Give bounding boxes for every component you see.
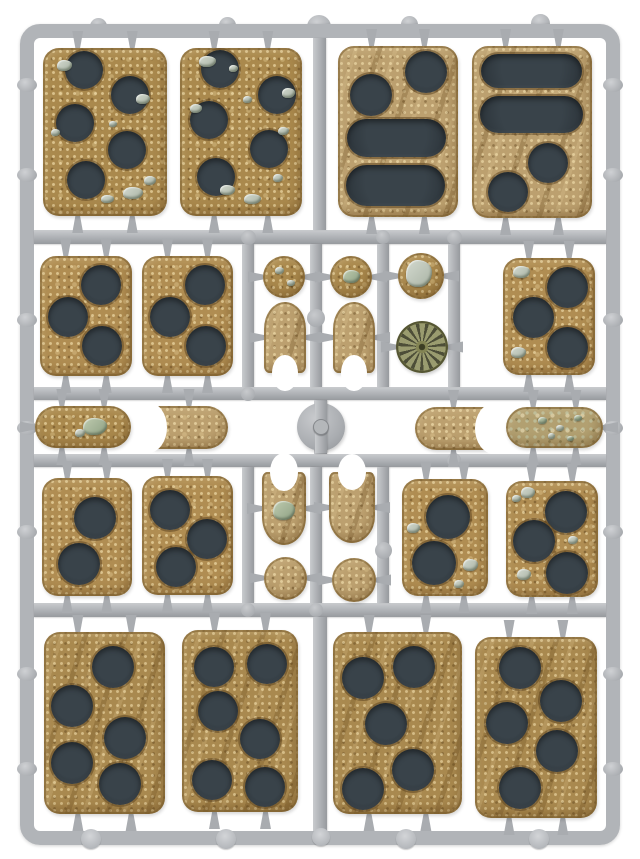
rock: [406, 260, 432, 287]
rock: [275, 267, 284, 274]
round-base: [264, 557, 307, 600]
rock: [57, 60, 72, 71]
base-hole-circle: [198, 691, 238, 731]
sprue-rail-vertical: [242, 244, 254, 387]
rock: [101, 195, 114, 203]
sprue-rail-vertical: [377, 244, 389, 387]
sprue-junction-disc: [376, 230, 390, 244]
tombstone-notch-cut: [272, 355, 298, 392]
base-hole-circle: [499, 647, 541, 689]
sprue-photo: [0, 0, 640, 859]
rock: [407, 523, 420, 533]
base-hole-pill: [481, 54, 582, 88]
base-hole-circle: [342, 768, 384, 810]
rock: [513, 266, 530, 278]
sprue-side-nub: [603, 168, 623, 182]
sprue-junction-disc: [241, 387, 255, 401]
base-hole-circle: [547, 267, 588, 308]
base-hole-circle: [486, 702, 528, 744]
sprue-side-nub: [603, 313, 623, 327]
base-hole-circle: [150, 490, 190, 530]
sprue-junction-disc: [447, 230, 462, 245]
base-hole-circle: [393, 646, 435, 688]
rock: [282, 88, 295, 98]
base-hole-circle: [51, 685, 93, 727]
rock: [273, 501, 295, 520]
rock: [463, 559, 478, 571]
rock: [517, 569, 531, 580]
sprue-side-nub: [17, 78, 37, 92]
sprue-gate-remnant-disc: [216, 829, 236, 849]
pill-base: [506, 407, 603, 448]
base-hole-circle: [547, 327, 588, 368]
rock: [190, 104, 202, 113]
rock: [278, 127, 289, 135]
rock: [199, 56, 216, 67]
base-hole-circle: [51, 742, 93, 784]
wheel-hub-dot: [419, 344, 425, 350]
rock: [229, 65, 238, 72]
base-hole-circle: [528, 143, 568, 183]
base-hole-circle: [74, 497, 116, 539]
rock: [343, 270, 360, 283]
base-hole-circle: [342, 657, 384, 699]
base-hole-circle: [185, 265, 225, 305]
sprue-side-nub: [17, 313, 37, 327]
base-hole-circle: [540, 680, 582, 722]
base-hole-circle: [365, 703, 407, 745]
tombstone-notch-cut: [341, 355, 367, 392]
base-hole-circle: [82, 326, 122, 366]
sprue-junction-disc: [241, 603, 255, 617]
rock: [512, 495, 521, 502]
sprue-junction-disc: [309, 603, 323, 617]
sprue-junction-disc: [307, 309, 325, 327]
base-hole-circle: [250, 130, 288, 168]
sprue-gate-remnant-disc: [396, 829, 416, 849]
sprue-side-nub: [603, 667, 623, 681]
rock: [144, 176, 156, 185]
rock: [567, 436, 574, 441]
base-hole-circle: [350, 74, 392, 116]
base-hole-circle: [187, 519, 227, 559]
tombstone-notch-cut: [270, 453, 297, 491]
base-hole-circle: [392, 749, 434, 791]
base-hole-circle: [104, 717, 146, 759]
rock: [244, 194, 261, 204]
sprue-side-nub: [17, 762, 37, 776]
base-hole-circle: [194, 647, 234, 687]
base-hole-pill: [347, 119, 446, 157]
base-hole-circle: [546, 552, 588, 594]
base-hole-circle: [247, 644, 287, 684]
sprue-side-nub: [17, 525, 37, 539]
sprue-junction-disc: [375, 542, 392, 559]
sprue-side-nub: [17, 667, 37, 681]
rock: [511, 347, 526, 358]
rock: [51, 129, 60, 136]
base-hole-circle: [513, 520, 555, 562]
base-hole-circle: [240, 719, 280, 759]
base-hole-pill: [346, 165, 445, 206]
base-hole-circle: [99, 763, 141, 805]
base-hole-circle: [513, 297, 554, 338]
base-hole-circle: [192, 760, 232, 800]
sprue-rail-vertical: [313, 38, 326, 230]
base-hole-circle: [65, 51, 103, 89]
base-hole-circle: [156, 547, 196, 587]
base-hole-circle: [405, 51, 447, 93]
base-hole-circle: [499, 767, 541, 809]
base-hole-circle: [488, 172, 528, 212]
base-hole-circle: [58, 543, 100, 585]
sprue-gate-remnant-disc: [312, 828, 330, 846]
sprue-rail-horizontal: [34, 454, 606, 467]
sprue-junction-disc: [241, 230, 256, 245]
sprue-rail-horizontal: [34, 387, 606, 400]
round-base: [263, 256, 305, 298]
base-hole-circle: [67, 161, 105, 199]
base-hole-circle: [56, 104, 94, 142]
base-hole-circle: [186, 326, 226, 366]
base-hole-circle: [48, 297, 88, 337]
rock: [220, 185, 235, 195]
sprue-rail-vertical: [313, 617, 327, 831]
sprue-side-nub: [603, 78, 623, 92]
rock: [521, 487, 535, 498]
rock: [548, 433, 555, 439]
sprue-side-nub: [17, 168, 37, 182]
base-hole-pill: [480, 96, 583, 133]
rock: [538, 417, 547, 424]
round-base: [332, 558, 376, 602]
base-hole-circle: [536, 730, 578, 772]
base-hole-circle: [81, 265, 121, 305]
sprue-side-nub: [603, 762, 623, 776]
base-hole-circle: [412, 541, 456, 585]
half-pill-crescent-cut: [129, 402, 167, 453]
rock: [83, 418, 107, 435]
base-hole-circle: [545, 491, 587, 533]
sprue-gate-remnant-disc: [529, 829, 549, 849]
base-hole-circle: [150, 297, 190, 337]
base-hole-circle: [92, 646, 134, 688]
sprue-rail-vertical: [448, 244, 460, 387]
rock: [243, 96, 252, 103]
sprue-disc-hub: [313, 419, 329, 435]
sprue-side-nub: [603, 525, 623, 539]
sprue-gate-remnant-disc: [81, 829, 101, 849]
base-hole-circle: [108, 131, 146, 169]
base-hole-circle: [245, 767, 285, 807]
base-hole-circle: [426, 495, 470, 539]
sprue-rail-horizontal: [34, 230, 606, 244]
